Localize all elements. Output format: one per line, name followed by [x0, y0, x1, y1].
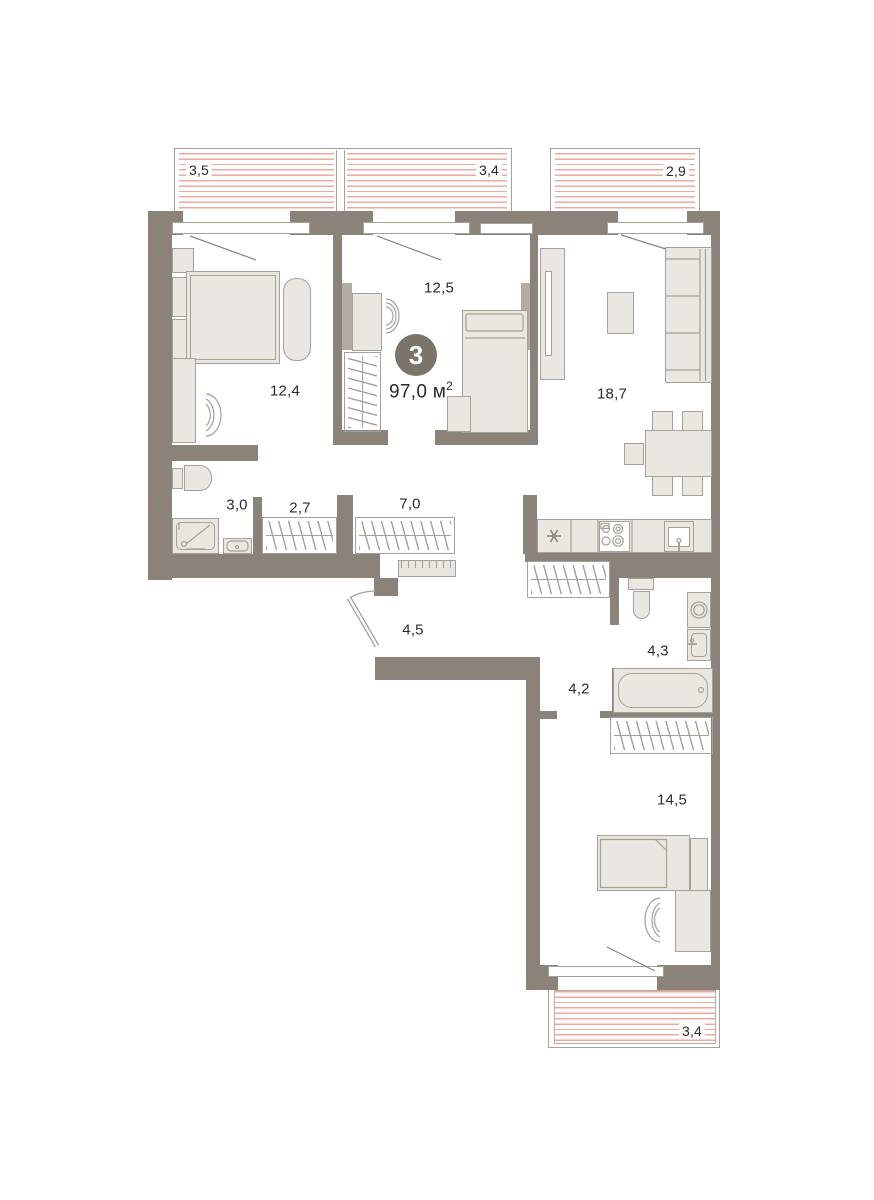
toilet: [633, 591, 650, 619]
shower: [172, 518, 219, 554]
chair: [624, 443, 644, 465]
wardrobe: [527, 561, 610, 598]
sink-basin: [691, 633, 707, 657]
total-area-sup: 2: [446, 379, 453, 393]
balcony-area-label: 3,4: [476, 162, 502, 178]
desk: [675, 890, 711, 952]
wall: [657, 965, 720, 990]
tv-stand: [540, 248, 565, 380]
wall: [333, 235, 342, 445]
bathtub-basin: [618, 673, 708, 708]
chair: [682, 411, 703, 431]
toilet: [184, 465, 212, 491]
room-area-label: 3,0: [226, 497, 247, 514]
toilet-tank: [172, 468, 183, 489]
balcony-area-label: 2,9: [663, 163, 689, 179]
single-bed: [462, 310, 528, 433]
wardrobe: [355, 517, 455, 554]
coffee-table: [607, 292, 634, 334]
wall: [253, 497, 262, 554]
shoe-bench: [398, 560, 456, 577]
wall: [342, 430, 388, 445]
wall: [610, 576, 619, 625]
dining-table: [645, 430, 712, 477]
floor-plan: 3,5 3,4 2,9 3,4 12,4 12,5 18,7 3,0 2,7 7…: [0, 0, 874, 1200]
wall: [148, 211, 172, 580]
pillow: [172, 319, 187, 359]
room-area-label: 4,2: [568, 681, 589, 698]
wall: [523, 495, 537, 554]
room-area-label: 14,5: [657, 792, 687, 809]
balcony-area-label: 3,5: [186, 162, 212, 178]
wall: [610, 553, 720, 578]
chair: [652, 476, 673, 496]
wall: [337, 495, 353, 554]
balcony-divider: [336, 150, 345, 212]
wall: [148, 554, 380, 578]
room-area-label: 12,4: [270, 383, 300, 400]
nightstand: [172, 248, 194, 273]
chair: [652, 411, 673, 431]
rug: [283, 278, 311, 361]
stove: [599, 521, 630, 552]
wall: [711, 211, 720, 990]
window-sill: [363, 222, 470, 234]
sofa: [665, 247, 712, 383]
window-sill: [172, 222, 310, 234]
chair: [682, 476, 703, 496]
desk: [172, 358, 196, 443]
room-area-label: 7,0: [399, 496, 420, 513]
wall-pier: [342, 283, 352, 350]
tv: [545, 271, 552, 356]
wall: [530, 235, 538, 438]
wall: [374, 578, 398, 596]
wall: [526, 657, 540, 990]
room-area-label: 18,7: [597, 386, 627, 403]
total-area-label: 97,0 м2: [389, 379, 453, 403]
double-bed: [186, 271, 280, 364]
wardrobe: [262, 517, 337, 554]
bathtub: [613, 668, 713, 713]
sink: [687, 629, 711, 661]
balcony-hatch: [555, 153, 695, 212]
total-area-value: 97,0 м: [389, 381, 446, 402]
window-sill: [548, 966, 664, 977]
vanity-desk: [352, 293, 382, 351]
balcony-area-label: 3,4: [679, 1023, 705, 1039]
shower-tray: [176, 522, 215, 550]
room-area-label: 2,7: [289, 500, 310, 517]
sink: [223, 538, 252, 554]
rooms-count: 3: [409, 340, 423, 371]
washing-machine: [687, 592, 711, 628]
wardrobe: [610, 717, 713, 754]
pillow: [172, 277, 187, 317]
wall: [375, 657, 540, 680]
window-sill: [607, 222, 704, 234]
bed-blanket: [190, 275, 276, 360]
wall: [148, 445, 258, 461]
single-bed: [597, 835, 690, 891]
toilet-tank: [628, 578, 654, 590]
room-area-label: 12,5: [424, 280, 454, 297]
wardrobe: [344, 352, 381, 432]
room-area-label: 4,5: [402, 622, 423, 639]
window-sill: [480, 223, 533, 234]
room-area-label: 4,3: [647, 643, 668, 660]
shoe-bench-detail: [401, 561, 453, 568]
wall: [540, 711, 557, 719]
rooms-count-badge: 3: [395, 334, 437, 376]
kitchen-sink-basin: [668, 527, 690, 547]
bed-headboard: [690, 838, 708, 892]
